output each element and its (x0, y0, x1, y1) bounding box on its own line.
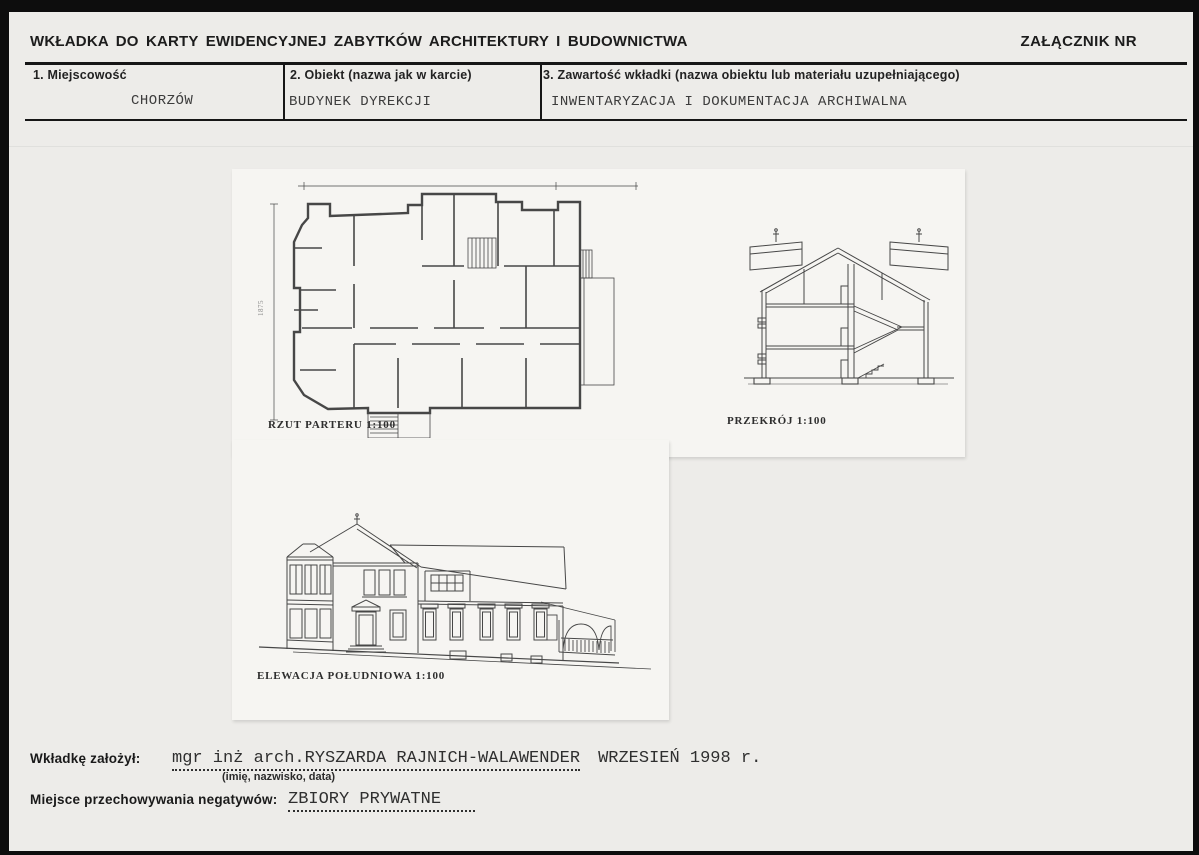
field-label-zawartosc: 3. Zawartość wkładki (nazwa obiektu lub … (543, 68, 960, 82)
cross-section-drawing (742, 226, 957, 406)
attachment-number-label: ZAŁĄCZNIK NR (1021, 33, 1137, 50)
elevation-main-block (333, 563, 418, 653)
field-value-miejscowosc: CHORZÓW (131, 93, 193, 109)
table-divider-2 (540, 62, 542, 121)
negatives-value: ZBIORY PRYWATNE (288, 790, 475, 812)
elevation-drawing (253, 512, 663, 680)
plan-outer-walls (294, 194, 580, 413)
negatives-label: Miejsce przechowywania negatywów: (30, 792, 277, 807)
scan-crease-line (9, 146, 1193, 147)
plan-height-dimension: 1875 (257, 300, 265, 316)
scanned-record-card: WKŁADKA DO KARTY EWIDENCYJNEJ ZABYTKÓW A… (0, 0, 1199, 855)
elevation-tower (287, 544, 333, 651)
page-title: WKŁADKA DO KARTY EWIDENCYJNEJ ZABYTKÓW A… (30, 33, 688, 50)
table-bottom-rule (25, 119, 1187, 122)
plan-terrace-outline (580, 278, 614, 385)
section-stairs (854, 306, 924, 378)
section-walls-floors (758, 264, 928, 378)
negatives-entry: ZBIORY PRYWATNE (288, 790, 475, 809)
section-ground (744, 378, 954, 384)
plan-caption: RZUT PARTERU 1:100 (268, 419, 396, 431)
floor-plan-drawing (258, 180, 663, 438)
elevation-roofs (310, 514, 566, 589)
field-label-miejscowosc: 1. Miejscowość (33, 68, 127, 82)
section-roof (750, 229, 948, 302)
card-background: WKŁADKA DO KARTY EWIDENCYJNEJ ZABYTKÓW A… (9, 12, 1193, 851)
field-label-obiekt: 2. Obiekt (nazwa jak w karcie) (290, 68, 472, 82)
author-hint: (imię, nazwisko, data) (222, 771, 335, 783)
section-caption: PRZEKRÓJ 1:100 (727, 415, 827, 427)
elevation-porch (541, 602, 615, 655)
field-value-obiekt: BUDYNEK DYREKCJI (289, 94, 431, 110)
author-entry: mgr inż arch.RYSZARDA RAJNICH-WALAWENDER… (172, 749, 761, 768)
author-date: WRZESIEŃ 1998 r. (598, 749, 761, 768)
author-label: Wkładkę założył: (30, 751, 140, 766)
field-value-zawartosc: INWENTARYZACJA I DOKUMENTACJA ARCHIWALNA (551, 94, 907, 110)
plan-interior-walls (294, 194, 580, 408)
elevation-caption: ELEWACJA POŁUDNIOWA 1:100 (257, 670, 445, 682)
table-divider-1 (283, 62, 285, 121)
elevation-ground (259, 647, 651, 669)
author-name: mgr inż arch.RYSZARDA RAJNICH-WALAWENDER (172, 749, 580, 771)
table-top-rule (25, 62, 1187, 65)
